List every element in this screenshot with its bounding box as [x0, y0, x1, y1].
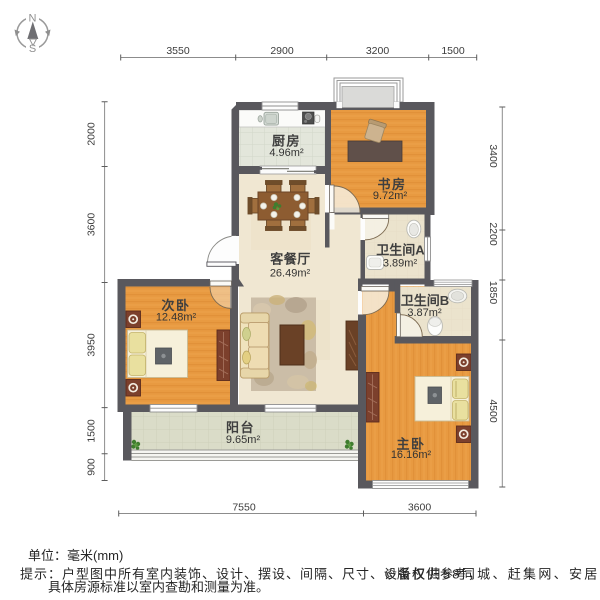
svg-text:12.48m²: 12.48m²: [156, 312, 197, 324]
svg-text:卫生间A: 卫生间A: [376, 243, 425, 258]
svg-text:3400: 3400: [487, 144, 499, 168]
svg-text:3950: 3950: [86, 333, 98, 357]
svg-text:26.49m²: 26.49m²: [270, 268, 311, 280]
svg-text:卫生间B: 卫生间B: [401, 293, 449, 308]
svg-text:4.96m²: 4.96m²: [269, 147, 304, 159]
svg-text:1500: 1500: [86, 419, 98, 443]
svg-text:3.89m²: 3.89m²: [383, 258, 418, 270]
svg-text:3550: 3550: [166, 45, 190, 57]
svg-text:2900: 2900: [270, 45, 294, 57]
svg-text:客餐厅: 客餐厅: [270, 252, 311, 267]
svg-text:4500: 4500: [487, 399, 499, 423]
svg-text:3.87m²: 3.87m²: [407, 307, 442, 319]
svg-text:单位：毫米(mm): 单位：毫米(mm): [28, 548, 123, 563]
svg-text:具体房源标准以室内查勘和测量为准。: 具体房源标准以室内查勘和测量为准。: [48, 580, 269, 595]
svg-text:7550: 7550: [232, 502, 256, 514]
svg-text:3200: 3200: [366, 45, 390, 57]
svg-text:16.16m²: 16.16m²: [391, 449, 432, 461]
svg-text:2200: 2200: [487, 222, 499, 246]
svg-text:9.65m²: 9.65m²: [226, 434, 261, 446]
svg-text:3600: 3600: [408, 502, 432, 514]
svg-text:阳台: 阳台: [226, 420, 255, 435]
svg-text:1850: 1850: [487, 281, 499, 305]
svg-text:900: 900: [86, 458, 98, 476]
svg-text:3600: 3600: [86, 213, 98, 237]
svg-text:©版权归58同城、赶集网、安居客所有: ©版权归58同城、赶集网、安居客所有: [385, 567, 600, 582]
svg-text:9.72m²: 9.72m²: [373, 190, 408, 202]
svg-text:1500: 1500: [441, 45, 465, 57]
svg-text:2000: 2000: [86, 122, 98, 146]
